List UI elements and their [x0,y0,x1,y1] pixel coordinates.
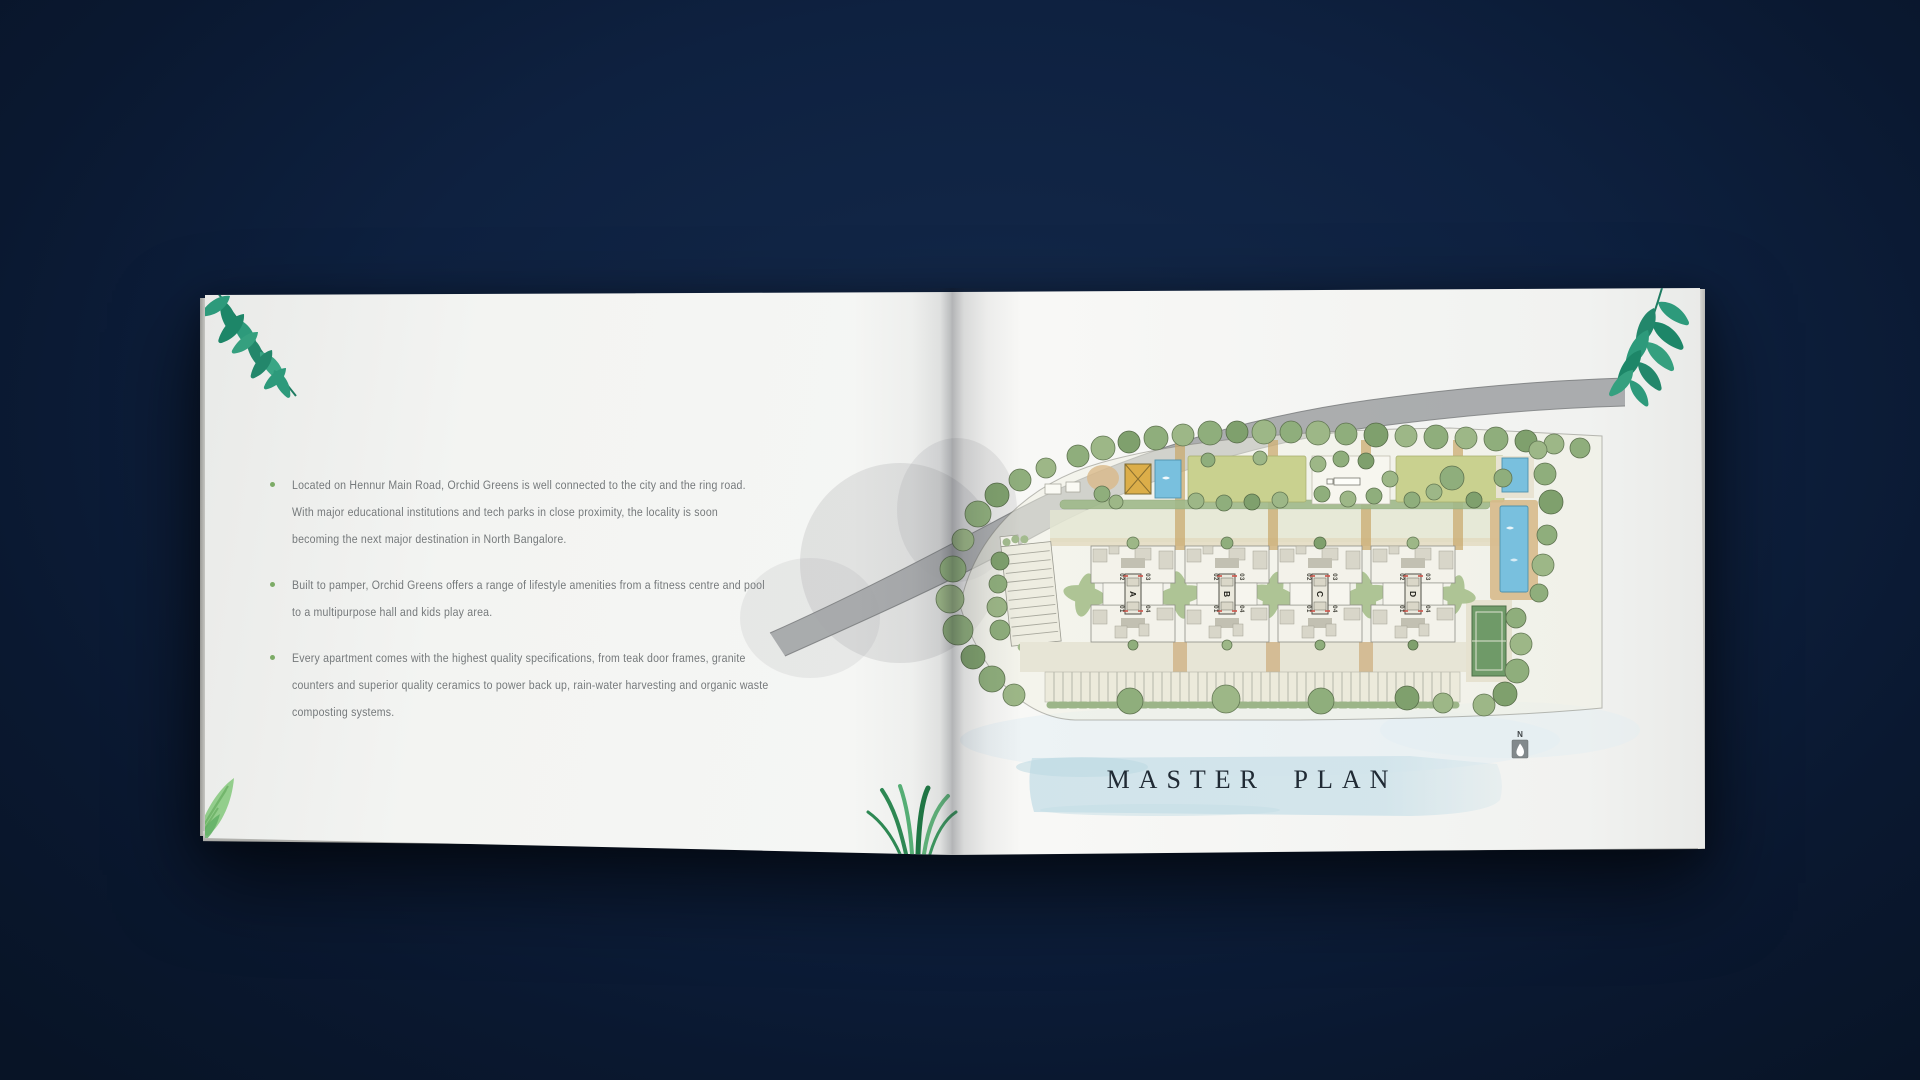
svg-text:04: 04 [1331,605,1337,613]
palm-leaf-top-right-icon [1605,288,1693,409]
lap-pool [1490,500,1538,600]
svg-text:D: D [1408,591,1418,597]
building-block-c: 02 03 01 04 C [1278,537,1362,650]
svg-text:02: 02 [1212,573,1218,581]
bullet-text: Every apartment comes with the highest q… [292,645,834,726]
leaf-bottom-left-icon [200,778,234,846]
svg-text:02: 02 [1398,573,1404,581]
building-block-d: 02 03 01 04 D [1371,537,1455,650]
svg-text:02: 02 [1118,573,1124,581]
svg-text:03: 03 [1238,573,1244,581]
svg-text:A: A [1128,591,1138,597]
building-block-a: 02 03 01 04 A [1091,537,1175,650]
svg-text:01: 01 [1398,605,1404,613]
brochure-spread: 02 03 01 04 A [200,288,1705,855]
svg-text:04: 04 [1238,605,1244,613]
building-block-b: 02 03 01 04 B [1185,537,1269,650]
svg-text:02: 02 [1305,573,1311,581]
bullet-text: Located on Hennur Main Road, Orchid Gree… [292,472,834,553]
grass-tuft-icon [868,786,956,854]
svg-text:01: 01 [1212,605,1218,613]
svg-text:04: 04 [1144,605,1150,613]
list-item: Built to pamper, Orchid Greens offers a … [270,572,930,626]
svg-text:01: 01 [1118,605,1124,613]
svg-text:C: C [1315,591,1325,597]
page-title: MASTER PLAN [1022,765,1482,795]
svg-text:N: N [1517,730,1523,739]
bullet-icon [270,582,275,587]
swimming-pool [1155,460,1181,498]
bullet-icon [270,655,275,660]
list-item: Every apartment comes with the highest q… [270,645,930,726]
svg-text:03: 03 [1144,573,1150,581]
backdrop: 02 03 01 04 A [0,0,1920,1080]
list-item: Located on Hennur Main Road, Orchid Gree… [270,472,930,553]
bullet-list: Located on Hennur Main Road, Orchid Gree… [270,472,930,745]
bullet-text: Built to pamper, Orchid Greens offers a … [292,572,834,626]
svg-text:04: 04 [1424,605,1430,613]
svg-text:B: B [1222,591,1232,597]
svg-text:01: 01 [1305,605,1311,613]
svg-text:03: 03 [1331,573,1337,581]
bullet-icon [270,482,275,487]
svg-text:03: 03 [1424,573,1430,581]
palm-leaf-top-left-icon [200,288,296,400]
